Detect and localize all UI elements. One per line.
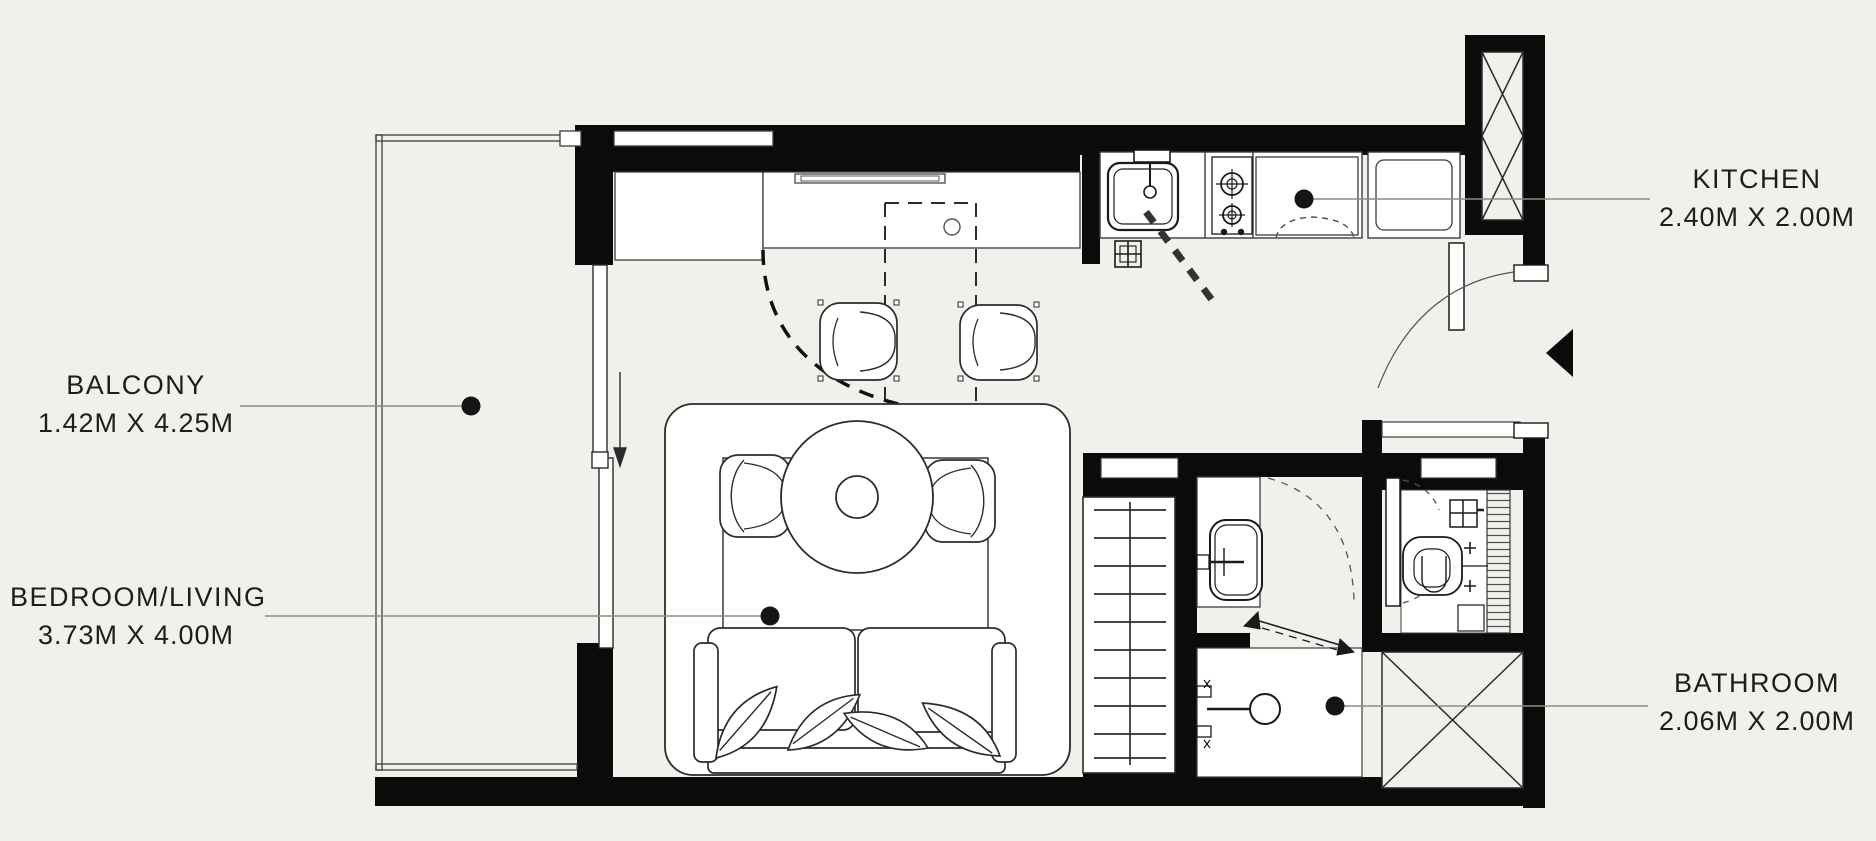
bar-stool-icon bbox=[818, 300, 899, 381]
leader-dot-kitchen bbox=[1295, 190, 1314, 209]
floor-plan: BALCONY 1.42M X 4.25M BEDROOM/LIVING 3.7… bbox=[0, 0, 1876, 841]
wc-cabinet bbox=[1458, 605, 1484, 631]
leader-dot-balcony bbox=[462, 397, 481, 416]
room-dimensions: 3.73M X 4.00M bbox=[10, 616, 262, 654]
window-icon bbox=[614, 131, 773, 146]
room-name: BATHROOM bbox=[1652, 664, 1862, 702]
room-label-bathroom: BATHROOM 2.06M X 2.00M bbox=[1652, 664, 1862, 740]
room-label-bedroom-living: BEDROOM/LIVING 3.73M X 4.00M bbox=[10, 578, 262, 654]
bar-stool-icon bbox=[958, 302, 1039, 381]
door-jamb bbox=[1514, 265, 1548, 281]
room-dimensions: 2.40M X 2.00M bbox=[1652, 198, 1862, 236]
balcony-railing bbox=[376, 135, 577, 770]
wardrobe-icon bbox=[1083, 458, 1178, 773]
duct-shaft-icon bbox=[1482, 52, 1523, 220]
duct-shaft-icon bbox=[1382, 652, 1523, 788]
wc-door-icon bbox=[1386, 478, 1400, 606]
floor-plan-drawing bbox=[0, 0, 1876, 841]
room-dimensions: 2.06M X 2.00M bbox=[1652, 702, 1862, 740]
leader-dot-bedroom bbox=[761, 607, 780, 626]
door-jamb bbox=[1514, 423, 1548, 438]
dining-chair-icon bbox=[925, 460, 995, 542]
door-slide-arrow-icon bbox=[614, 372, 626, 466]
room-dimensions: 1.42M X 4.25M bbox=[28, 404, 244, 442]
room-label-kitchen: KITCHEN 2.40M X 2.00M bbox=[1652, 160, 1862, 236]
sliding-door-icon bbox=[592, 265, 613, 648]
wc-niche bbox=[1421, 458, 1496, 478]
railing-end-trim bbox=[560, 131, 581, 146]
leader-dot-bathroom bbox=[1326, 697, 1345, 716]
refrigerator-icon bbox=[1368, 152, 1460, 238]
room-label-balcony: BALCONY 1.42M X 4.25M bbox=[28, 366, 244, 442]
room-name: BALCONY bbox=[28, 366, 244, 404]
doorway-band bbox=[1382, 422, 1520, 437]
room-name: KITCHEN bbox=[1652, 160, 1862, 198]
duct-hatch-strip bbox=[1487, 490, 1510, 633]
round-table-icon bbox=[781, 421, 933, 573]
bathroom-door-swing bbox=[1268, 478, 1354, 600]
dining-chair-icon bbox=[720, 455, 790, 537]
breakfast-counter bbox=[615, 172, 1080, 260]
floor-drain-icon bbox=[1115, 241, 1141, 267]
room-name: BEDROOM/LIVING bbox=[10, 578, 262, 616]
gas-hob-icon bbox=[1212, 157, 1252, 235]
entry-door-icon bbox=[1378, 243, 1514, 388]
entry-arrow-icon bbox=[1546, 329, 1573, 377]
